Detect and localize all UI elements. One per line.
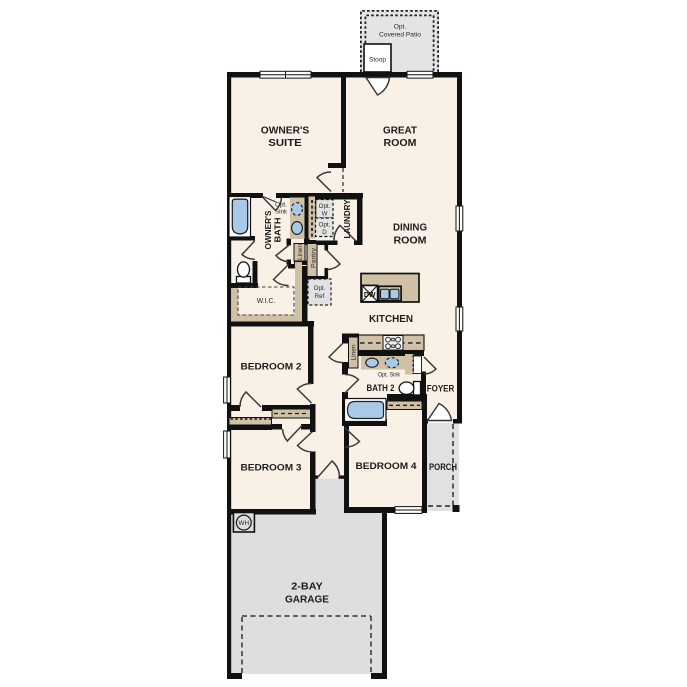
svg-text:Linen: Linen [351,344,358,360]
svg-text:Sink: Sink [275,209,288,216]
svg-text:BEDROOM 2: BEDROOM 2 [241,362,302,372]
svg-text:FOYER: FOYER [427,384,455,394]
svg-text:LAUNDRY: LAUNDRY [342,199,352,238]
svg-text:Opt.: Opt. [275,202,287,209]
svg-text:Opt.: Opt. [394,24,407,31]
svg-text:PORCH: PORCH [429,462,457,472]
svg-text:Linen: Linen [297,244,304,260]
svg-text:GREATROOM: GREATROOM [383,125,417,149]
svg-text:KITCHEN: KITCHEN [369,314,413,325]
svg-text:Covered Patio: Covered Patio [379,32,421,39]
svg-text:WH: WH [239,520,250,527]
svg-text:Opt. Sink: Opt. Sink [378,372,401,379]
svg-text:BEDROOM 4: BEDROOM 4 [356,461,418,471]
svg-text:D: D [322,229,327,236]
svg-text:W.I.C.: W.I.C. [257,296,276,305]
svg-text:Opt.: Opt. [319,203,331,210]
svg-text:BATH 2: BATH 2 [367,383,395,393]
svg-text:Stoop: Stoop [369,57,386,64]
svg-text:DW: DW [364,292,376,299]
svg-text:Opt.: Opt. [319,222,331,229]
svg-text:Pantry: Pantry [311,247,318,268]
svg-text:Opt.: Opt. [314,285,326,292]
svg-text:Ref: Ref [315,293,325,300]
svg-text:BEDROOM 3: BEDROOM 3 [241,463,302,473]
svg-text:DININGROOM: DININGROOM [393,223,427,247]
svg-text:W: W [322,211,328,218]
